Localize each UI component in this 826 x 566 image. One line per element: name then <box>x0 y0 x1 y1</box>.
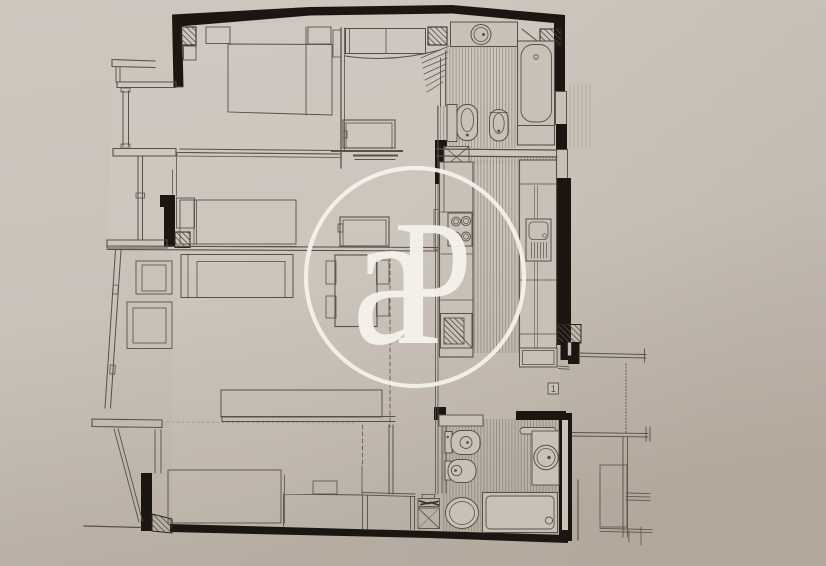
svg-text:P: P <box>394 182 472 382</box>
svg-text:1: 1 <box>551 384 556 394</box>
